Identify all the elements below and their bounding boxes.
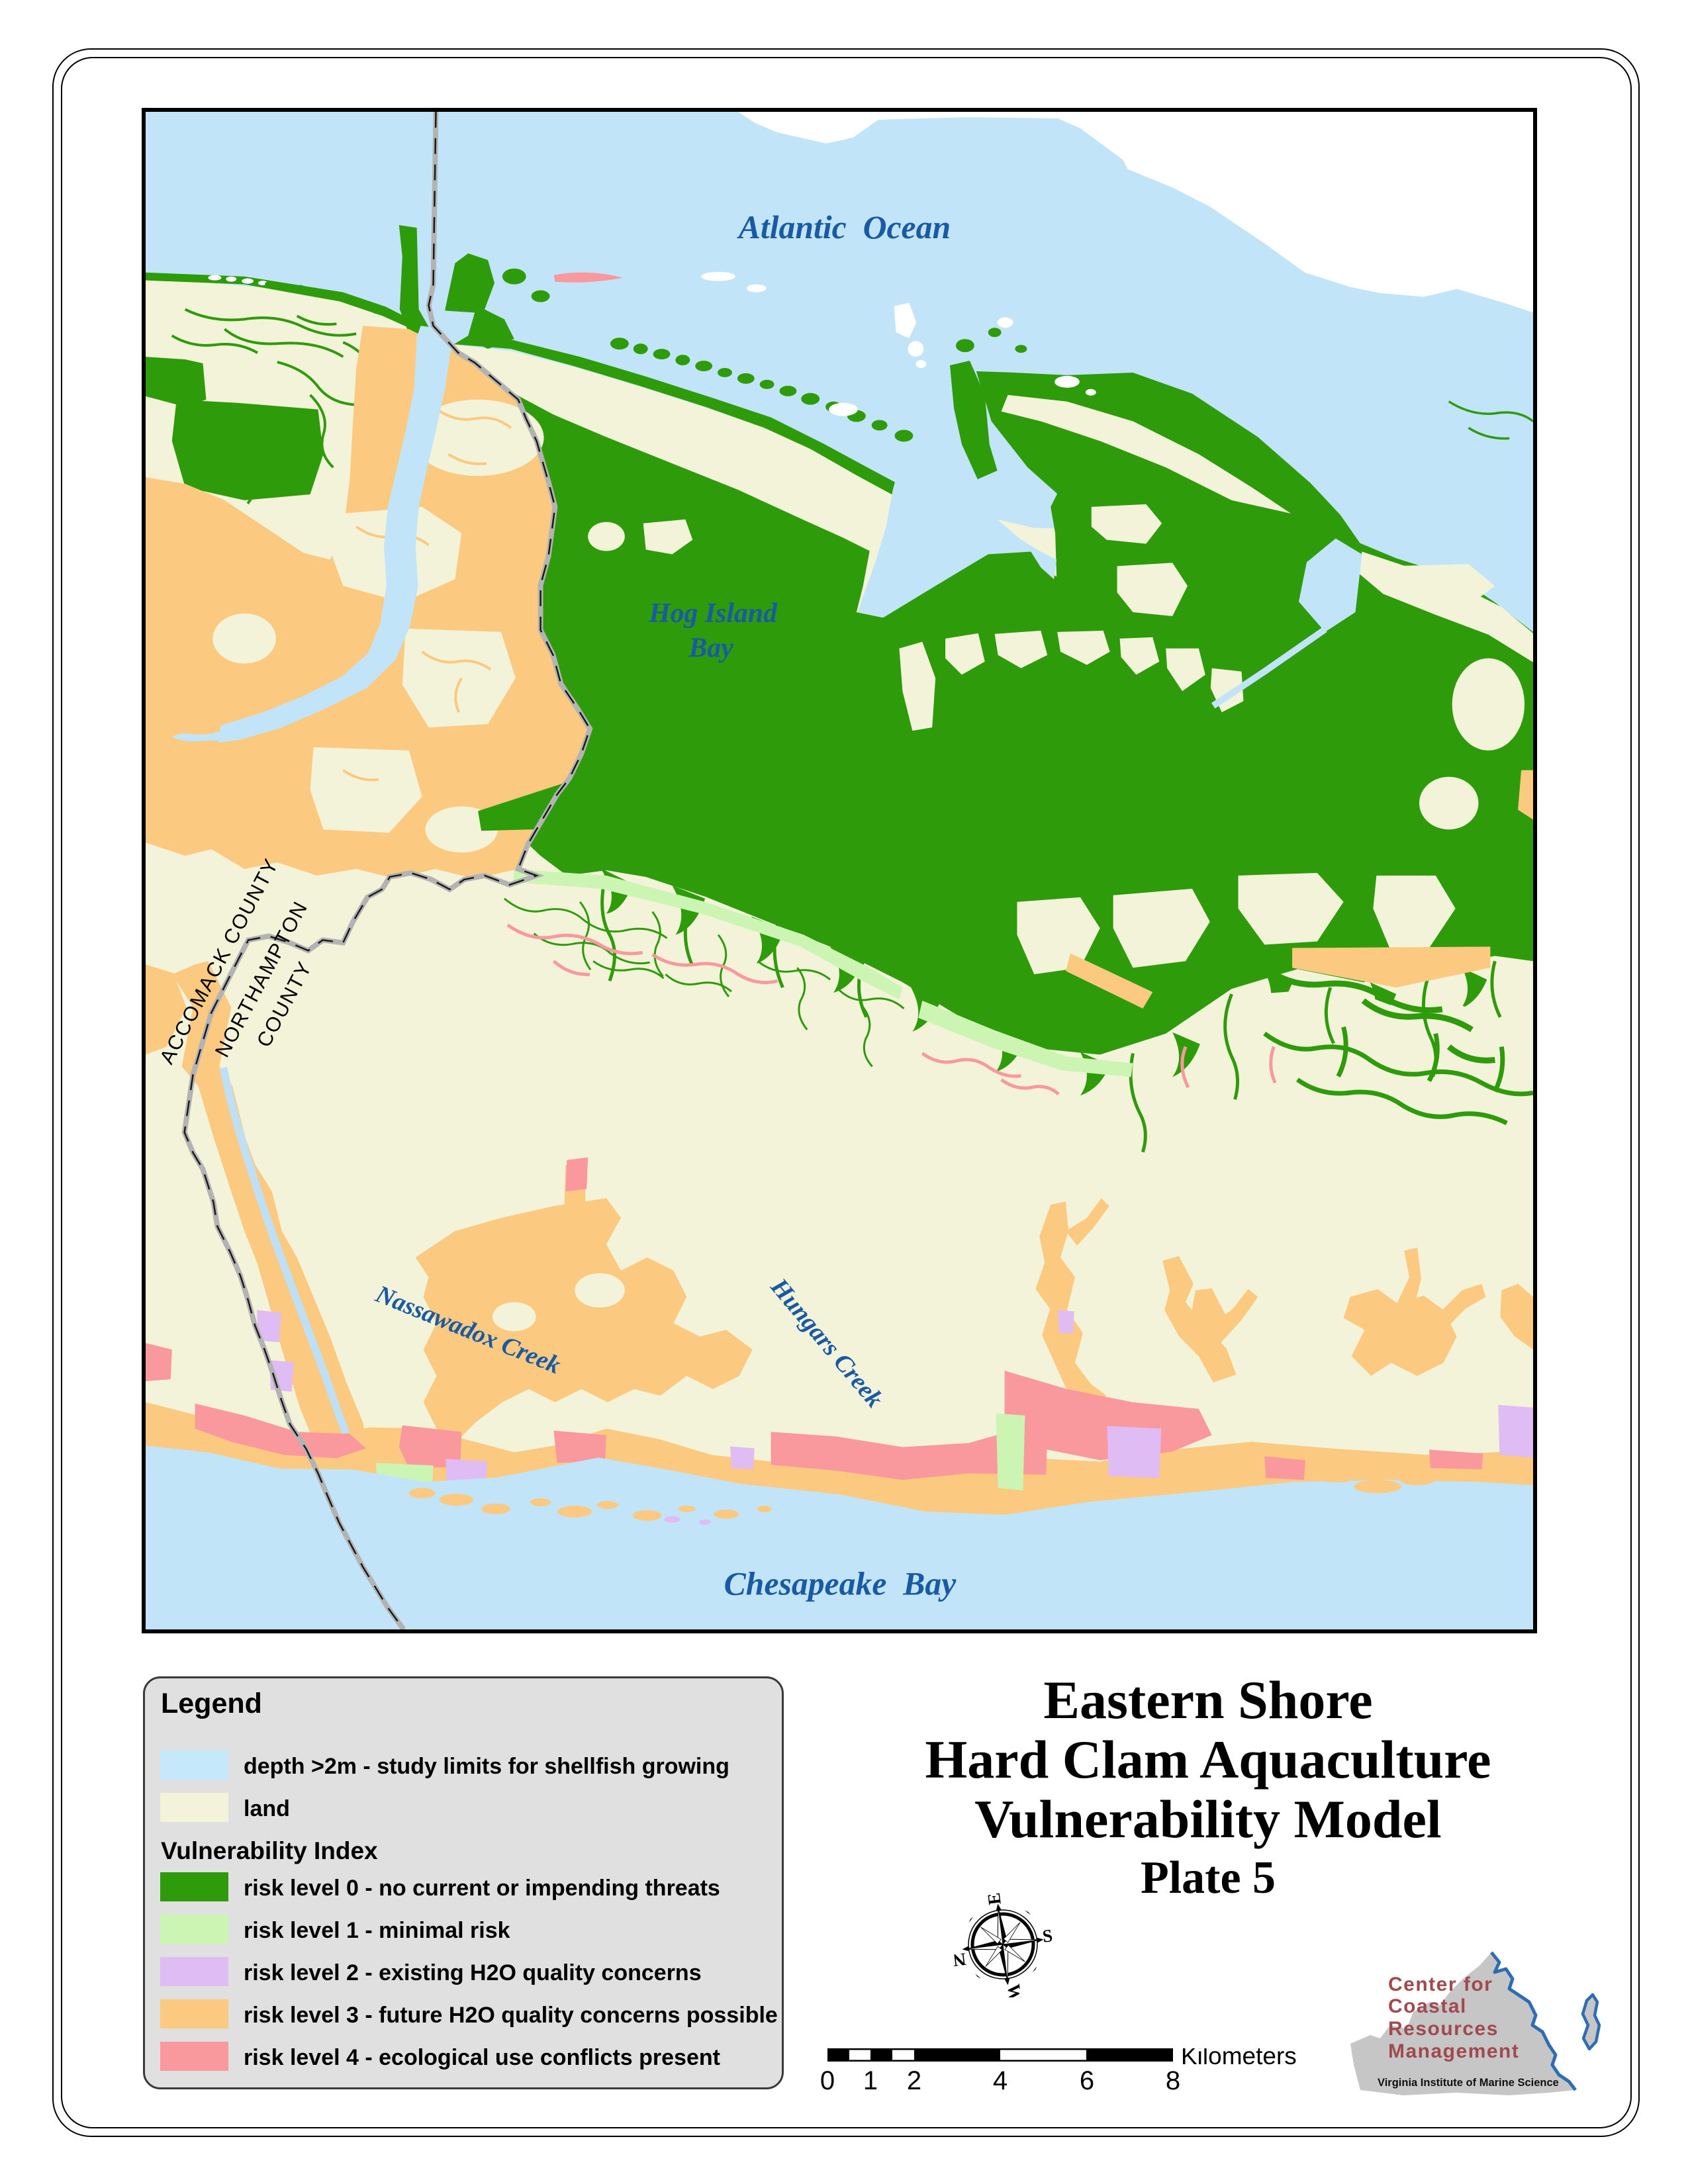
svg-text:W: W (1004, 1983, 1025, 1997)
svg-text:Center for: Center for (1388, 1974, 1493, 1995)
svg-text:1: 1 (863, 2066, 878, 2095)
svg-text:Bay: Bay (688, 633, 733, 664)
svg-text:0: 0 (820, 2066, 835, 2095)
svg-text:Management: Management (1388, 2040, 1519, 2062)
svg-text:N: N (952, 1949, 968, 1970)
svg-text:Hog Island: Hog Island (648, 598, 778, 629)
svg-text:Kilometers: Kilometers (1181, 2048, 1297, 2070)
svg-text:2: 2 (907, 2066, 921, 2095)
svg-text:Resources: Resources (1388, 2018, 1499, 2040)
svg-text:Chesapeake Bay: Chesapeake Bay (724, 1565, 957, 1602)
svg-text:S: S (1041, 1925, 1054, 1946)
svg-text:4: 4 (993, 2066, 1008, 2095)
svg-text:6: 6 (1080, 2066, 1094, 2095)
svg-text:E: E (984, 1891, 1005, 1906)
svg-text:Atlantic Ocean: Atlantic Ocean (737, 209, 951, 246)
svg-text:Virginia Institute of Marine S: Virginia Institute of Marine Science (1378, 2077, 1559, 2089)
svg-text:8: 8 (1166, 2066, 1180, 2095)
svg-text:Coastal: Coastal (1388, 1995, 1467, 2017)
